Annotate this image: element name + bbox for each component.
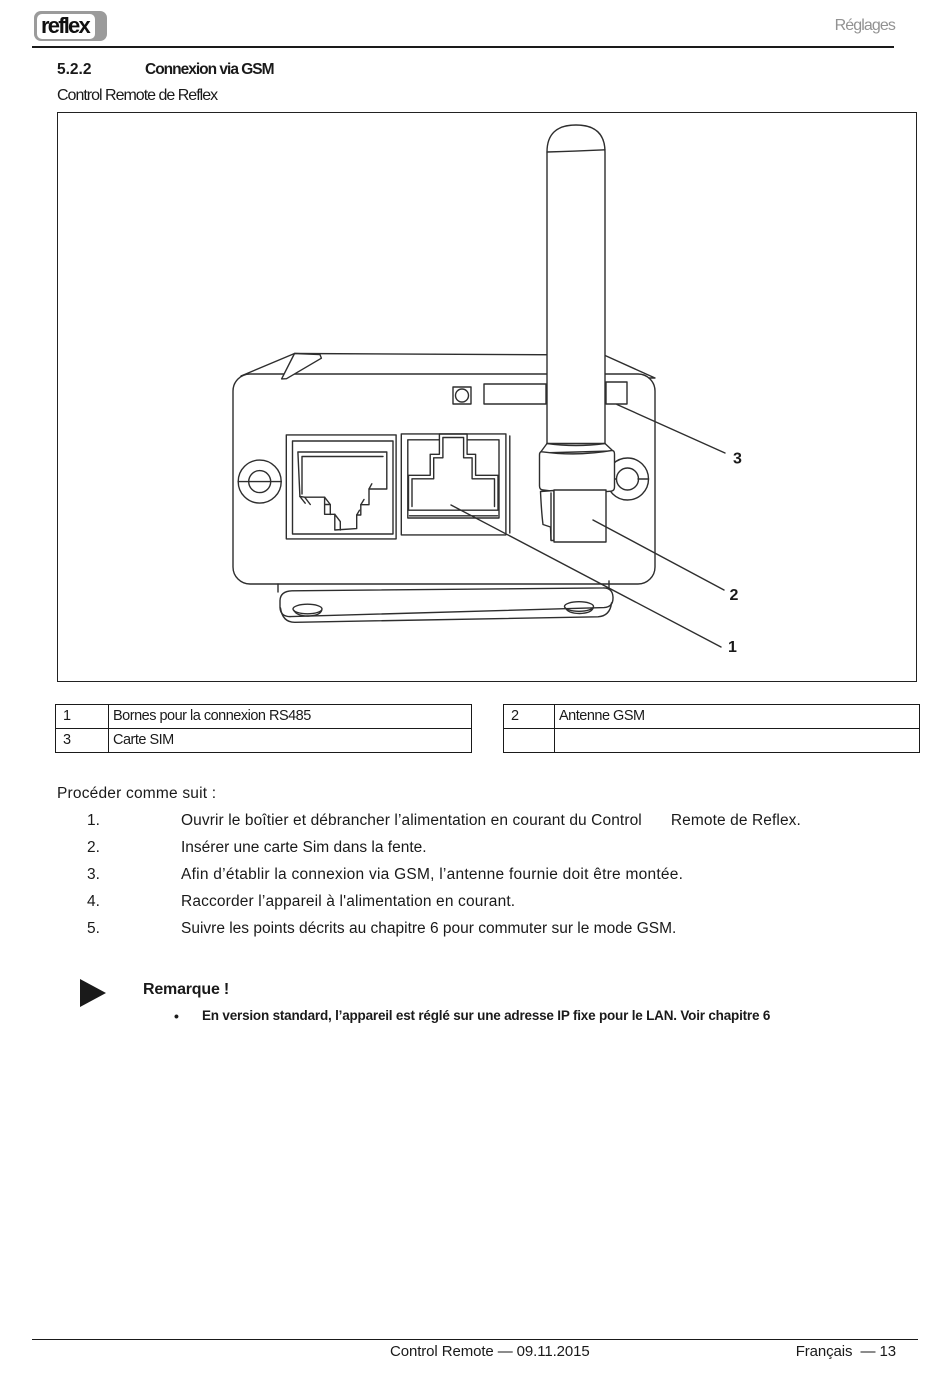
svg-text:3: 3	[733, 451, 742, 468]
svg-text:2: 2	[730, 587, 739, 604]
svg-text:1: 1	[728, 639, 737, 656]
